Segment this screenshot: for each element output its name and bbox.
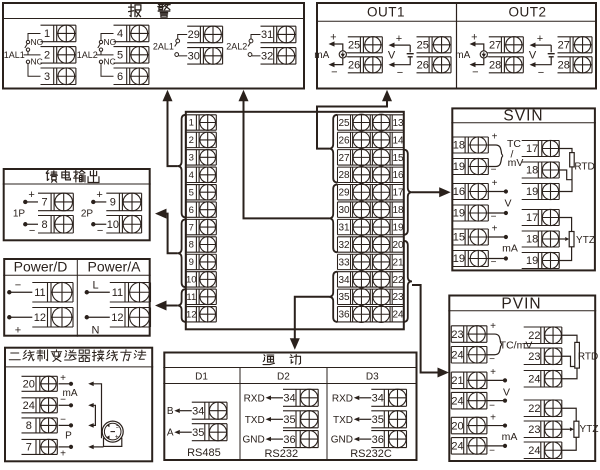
svg-text:28: 28 — [489, 60, 501, 72]
svg-text:24: 24 — [451, 349, 463, 361]
svg-text:V: V — [503, 386, 510, 398]
svg-text:35: 35 — [372, 414, 384, 426]
svg-text:19: 19 — [453, 253, 465, 265]
svg-text:34: 34 — [192, 405, 204, 417]
svg-text:−: − — [60, 414, 66, 425]
svg-text:23: 23 — [451, 329, 463, 341]
svg-text:24: 24 — [23, 400, 35, 412]
svg-text:mV: mV — [508, 157, 524, 169]
svg-text:36: 36 — [283, 434, 295, 446]
svg-text:+: + — [471, 32, 477, 44]
svg-text:18: 18 — [526, 234, 538, 246]
svg-text:+: + — [15, 325, 21, 337]
svg-text:32: 32 — [338, 240, 350, 251]
svg-text:19: 19 — [453, 208, 465, 220]
svg-text:+: + — [96, 189, 102, 201]
svg-text:SVIN: SVIN — [503, 107, 543, 124]
svg-text:3: 3 — [189, 153, 194, 164]
svg-text:6: 6 — [117, 71, 123, 83]
svg-text:TC: TC — [507, 138, 521, 150]
svg-text:mA: mA — [502, 431, 518, 443]
svg-text:L: L — [92, 279, 98, 291]
svg-text:30: 30 — [338, 205, 350, 216]
svg-text:2AL1: 2AL1 — [153, 41, 174, 51]
svg-text:RS232C: RS232C — [350, 448, 392, 460]
svg-text:mA: mA — [455, 50, 470, 61]
svg-text:35: 35 — [192, 427, 204, 439]
svg-text:YTZ: YTZ — [580, 424, 599, 435]
svg-text:1AL1: 1AL1 — [4, 50, 25, 60]
svg-text:+: + — [492, 132, 498, 143]
svg-text:26: 26 — [417, 60, 429, 72]
svg-text:D3: D3 — [366, 371, 379, 382]
svg-text:RTD: RTD — [578, 352, 598, 363]
svg-text:−: − — [15, 279, 21, 291]
svg-text:31: 31 — [261, 29, 273, 41]
svg-text:26: 26 — [338, 135, 350, 146]
svg-text:+: + — [60, 448, 66, 459]
svg-text:−: − — [491, 165, 497, 176]
svg-text:−: − — [538, 67, 544, 79]
svg-text:29: 29 — [188, 29, 200, 41]
svg-text:11: 11 — [186, 292, 196, 303]
svg-text:−: − — [489, 446, 495, 457]
svg-text:14: 14 — [392, 135, 404, 146]
svg-text:35: 35 — [283, 414, 295, 426]
svg-text:mA: mA — [502, 243, 518, 255]
svg-text:7: 7 — [26, 442, 32, 454]
svg-text:24: 24 — [528, 373, 540, 385]
svg-text:16: 16 — [453, 186, 465, 198]
svg-text:23: 23 — [528, 424, 540, 436]
svg-text:12: 12 — [111, 312, 123, 324]
svg-text:NC: NC — [31, 57, 43, 67]
svg-text:D1: D1 — [195, 371, 208, 382]
svg-text:TXD: TXD — [245, 415, 265, 426]
svg-text:+: + — [115, 434, 119, 441]
svg-text:36: 36 — [338, 310, 350, 321]
svg-text:−: − — [491, 212, 497, 223]
svg-text:19: 19 — [453, 161, 465, 173]
svg-text:22: 22 — [392, 275, 404, 286]
svg-text:21: 21 — [451, 375, 463, 387]
svg-text:OUT2: OUT2 — [508, 5, 546, 20]
svg-text:+: + — [490, 321, 496, 332]
svg-text:GND: GND — [331, 435, 353, 446]
svg-text:+: + — [490, 367, 496, 378]
svg-text:10: 10 — [186, 275, 197, 286]
svg-text:4: 4 — [189, 170, 194, 181]
svg-text:5: 5 — [189, 187, 194, 198]
svg-text:17: 17 — [392, 188, 404, 199]
svg-text:2AL2: 2AL2 — [226, 41, 247, 51]
svg-text:−: − — [489, 354, 495, 365]
svg-text:2P: 2P — [81, 208, 94, 219]
svg-text:9: 9 — [110, 197, 116, 209]
svg-text:GND: GND — [242, 435, 264, 446]
svg-text:3: 3 — [44, 71, 50, 83]
svg-text:mA: mA — [314, 50, 329, 61]
svg-text:P: P — [65, 430, 72, 441]
svg-text:2: 2 — [44, 50, 50, 62]
svg-text:22: 22 — [528, 330, 540, 342]
svg-text:V: V — [529, 49, 537, 61]
svg-text:28: 28 — [558, 60, 570, 72]
svg-text:5: 5 — [117, 50, 123, 62]
svg-text:34: 34 — [283, 393, 295, 405]
svg-text:8: 8 — [189, 240, 194, 251]
svg-text:33: 33 — [338, 257, 350, 268]
svg-text:26: 26 — [348, 60, 360, 72]
svg-text:2: 2 — [189, 135, 194, 146]
svg-text:11: 11 — [112, 287, 123, 299]
svg-text:16: 16 — [392, 170, 404, 181]
svg-text:OUT1: OUT1 — [367, 5, 405, 20]
svg-text:34: 34 — [338, 275, 350, 286]
svg-text:20: 20 — [23, 379, 35, 391]
svg-text:Power/D: Power/D — [14, 258, 68, 274]
svg-text:YTZ: YTZ — [576, 235, 595, 246]
svg-text:+: + — [28, 189, 34, 201]
svg-text:13: 13 — [392, 118, 404, 129]
svg-text:N: N — [92, 325, 100, 337]
svg-text:+: + — [60, 373, 66, 384]
svg-text:19: 19 — [392, 222, 404, 233]
svg-text:17: 17 — [526, 212, 538, 224]
svg-text:RS232: RS232 — [264, 448, 298, 460]
svg-text:24: 24 — [528, 445, 540, 457]
svg-text:20: 20 — [392, 240, 404, 251]
svg-text:15: 15 — [392, 153, 404, 164]
svg-text:24: 24 — [392, 310, 404, 321]
svg-text:D2: D2 — [277, 371, 290, 382]
svg-text:−: − — [489, 400, 495, 411]
svg-text:8: 8 — [41, 219, 47, 231]
svg-text:35: 35 — [338, 292, 350, 303]
svg-text:17: 17 — [526, 143, 538, 155]
svg-text:+: + — [492, 224, 498, 235]
svg-text:V: V — [388, 49, 396, 61]
svg-text:20: 20 — [451, 420, 463, 432]
svg-text:−: − — [472, 67, 478, 79]
svg-text:=: = — [116, 424, 119, 430]
svg-text:31: 31 — [338, 222, 350, 233]
svg-text:4: 4 — [117, 28, 123, 40]
svg-text:34: 34 — [372, 393, 384, 405]
svg-text:27: 27 — [489, 40, 501, 52]
svg-text:−: − — [397, 67, 403, 79]
svg-text:−: − — [491, 257, 497, 268]
svg-text:RS485: RS485 — [187, 447, 221, 459]
svg-text:+: + — [537, 33, 543, 45]
svg-text:21: 21 — [392, 257, 404, 268]
svg-text:−: − — [29, 225, 35, 237]
svg-text:1AL2: 1AL2 — [77, 50, 98, 60]
svg-text:29: 29 — [338, 188, 350, 199]
svg-text:12: 12 — [186, 309, 197, 320]
svg-text:28: 28 — [338, 170, 350, 181]
svg-text:1: 1 — [44, 28, 50, 40]
svg-text:6: 6 — [189, 205, 194, 216]
svg-text:7: 7 — [189, 222, 194, 233]
svg-text:V: V — [504, 197, 511, 209]
svg-text:8: 8 — [26, 420, 32, 432]
svg-text:10: 10 — [107, 219, 119, 231]
svg-text:RXD: RXD — [244, 393, 265, 404]
svg-text:1: 1 — [189, 118, 194, 129]
svg-text:+: + — [492, 178, 498, 189]
svg-text:23: 23 — [392, 292, 404, 303]
svg-text:1P: 1P — [13, 208, 26, 219]
svg-text:−: − — [97, 225, 103, 237]
svg-text:RTD: RTD — [574, 162, 594, 173]
svg-text:22: 22 — [528, 403, 540, 415]
svg-text:36: 36 — [372, 434, 384, 446]
svg-text:+: + — [330, 32, 336, 44]
svg-text:mA: mA — [63, 388, 78, 399]
svg-text:TXD: TXD — [333, 415, 353, 426]
svg-text:24: 24 — [451, 395, 463, 407]
svg-text:12: 12 — [34, 312, 46, 324]
svg-text:11: 11 — [34, 287, 45, 299]
svg-text:+: + — [396, 33, 402, 45]
svg-text:7: 7 — [41, 197, 47, 209]
svg-text:23: 23 — [528, 351, 540, 363]
svg-text:PVIN: PVIN — [501, 296, 541, 313]
svg-text:19: 19 — [526, 186, 538, 198]
svg-text:32: 32 — [261, 51, 273, 63]
svg-text:27: 27 — [338, 153, 350, 164]
svg-text:19: 19 — [526, 255, 538, 267]
svg-text:+: + — [490, 412, 496, 423]
svg-text:A: A — [167, 428, 174, 439]
svg-text:18: 18 — [526, 165, 538, 177]
svg-text:30: 30 — [188, 51, 200, 63]
svg-text:9: 9 — [189, 257, 194, 268]
svg-text:NC: NC — [104, 57, 116, 67]
svg-text:RXD: RXD — [332, 393, 353, 404]
svg-text:25: 25 — [417, 40, 429, 52]
svg-text:25: 25 — [338, 118, 350, 129]
svg-text:−: − — [331, 67, 337, 79]
svg-text:Power/A: Power/A — [88, 258, 142, 274]
svg-text:25: 25 — [348, 40, 360, 52]
svg-text:18: 18 — [453, 140, 465, 152]
svg-text:27: 27 — [558, 40, 570, 52]
svg-text:24: 24 — [451, 441, 463, 453]
svg-text:B: B — [167, 406, 174, 417]
svg-text:18: 18 — [392, 205, 404, 216]
svg-text:15: 15 — [453, 232, 465, 244]
